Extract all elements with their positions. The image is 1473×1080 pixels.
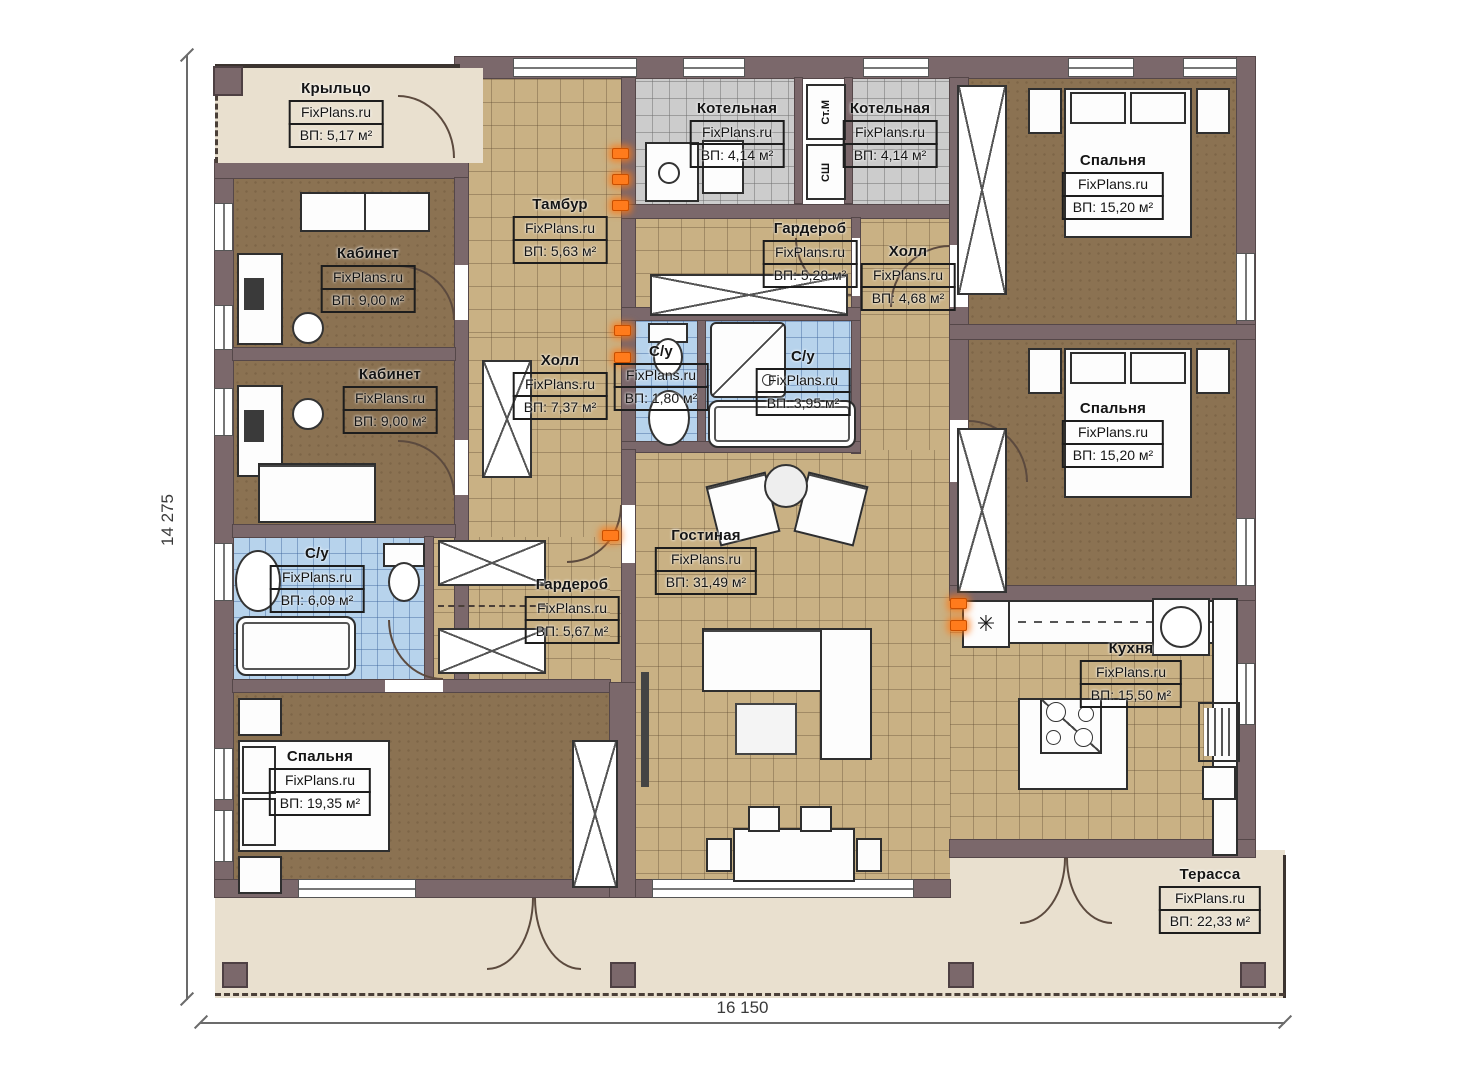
wardrobe-bedroom2 [957,428,1007,593]
window-top-5 [1183,58,1237,77]
watermark: FixPlans.ru [343,386,438,411]
room-area: ВП: 9,00 м² [343,409,438,434]
watermark: FixPlans.ru [269,768,371,793]
room-name: Холл [513,352,608,369]
wall-boilers-bottom [622,205,950,218]
watermark: FixPlans.ru [861,263,956,288]
room-label-living: Гостиная FixPlans.ru ВП: 31,49 м² [655,527,757,595]
washer-box: Ст.М [806,84,846,140]
room-label-hall1: Холл FixPlans.ru ВП: 4,68 м² [861,243,956,311]
room-name: Тамбур [513,196,608,213]
watermark: FixPlans.ru [1062,172,1164,197]
nightstand-bedroom3-top [238,698,282,736]
pillow-bedroom1-left [1070,92,1126,124]
pillow-bedroom1-right [1130,92,1186,124]
room-name: С/у [614,343,709,360]
room-area: ВП: 5,67 м² [525,619,620,644]
dimension-width-label: 16 150 [700,998,785,1018]
window-left-1 [214,203,233,251]
sofa-chaise [820,628,872,760]
window-bottom-1 [298,879,416,898]
dining-chair-3 [706,838,732,872]
radiator-marker [950,620,967,631]
terrace-right-edge [1283,855,1286,998]
wall-offices-right [455,178,468,683]
side-table [764,464,808,508]
pillow-bedroom2-right [1130,352,1186,384]
chair-office2 [292,398,324,430]
watermark: FixPlans.ru [763,240,858,265]
radiator-marker [614,325,631,336]
watermark: FixPlans.ru [690,120,785,145]
room-label-porch: Крыльцо FixPlans.ru ВП: 5,17 м² [289,80,384,148]
dining-table [733,828,855,882]
window-top-3 [863,58,929,77]
room-area: ВП: 15,20 м² [1062,443,1164,468]
room-label-wardrobe1: Гардероб FixPlans.ru ВП: 5,28 м² [763,220,858,288]
terrace-post-3 [948,962,974,988]
room-area: ВП: 5,17 м² [289,123,384,148]
nightstand-bedroom1-right [1196,88,1230,134]
room-label-office2: Кабинет FixPlans.ru ВП: 9,00 м² [343,366,438,434]
window-top-2 [683,58,745,77]
window-left-6 [214,810,233,862]
room-label-wc3: С/у FixPlans.ru ВП: 6,09 м² [270,545,365,613]
monitor-office2 [244,410,264,442]
room-area: ВП: 3,95 м² [756,391,851,416]
watermark: FixPlans.ru [513,372,608,397]
room-name: Спальня [269,748,371,765]
room-label-wc1: С/у FixPlans.ru ВП: 1,80 м² [614,343,709,411]
terrace-post-2 [610,962,636,988]
room-label-boiler2: Котельная FixPlans.ru ВП: 4,14 м² [843,100,938,168]
watermark: FixPlans.ru [289,100,384,125]
room-area: ВП: 7,37 м² [513,395,608,420]
room-name: Котельная [690,100,785,117]
watermark: FixPlans.ru [513,216,608,241]
toilet-bowl-wc3 [388,562,420,602]
dimension-line-bottom [200,1022,1285,1024]
vent-glyph-icon: ✳ [977,611,995,637]
burner-4 [1074,728,1093,747]
wall-bedrooms-divider [950,325,1255,339]
nightstand-bedroom2-right [1196,348,1230,394]
watermark: FixPlans.ru [321,265,416,290]
porch-column [213,66,243,96]
watermark: FixPlans.ru [525,596,620,621]
room-name: Котельная [843,100,938,117]
room-area: ВП: 4,14 м² [843,143,938,168]
radiator-marker [612,148,629,159]
room-area: ВП: 4,68 м² [861,286,956,311]
window-left-3 [214,388,233,436]
terrace-post-4 [1240,962,1266,988]
room-label-tambour: Тамбур FixPlans.ru ВП: 5,63 м² [513,196,608,264]
room-area: ВП: 15,50 м² [1080,683,1182,708]
room-area: ВП: 22,33 м² [1159,909,1261,934]
door-gap-living [622,505,635,563]
bathtub-wc3 [236,616,356,676]
monitor-office1 [244,278,264,310]
room-label-boiler1: Котельная FixPlans.ru ВП: 4,14 м² [690,100,785,168]
wall-living-left [622,450,635,683]
room-name: С/у [756,348,851,365]
room-label-terrace: Терасса FixPlans.ru ВП: 22,33 м² [1159,866,1261,934]
dining-chair-4 [856,838,882,872]
burner-1 [1046,702,1066,722]
room-area: ВП: 9,00 м² [321,288,416,313]
dryer-box: СШ [806,144,846,200]
terrace-edge-dashed [215,990,1285,996]
wall-kitchen-bottom [950,840,1255,857]
sofa-office2 [258,463,376,523]
chair-office1 [292,312,324,344]
watermark: FixPlans.ru [1080,660,1182,685]
room-name: Гардероб [763,220,858,237]
room-label-hall2: Холл FixPlans.ru ВП: 7,37 м² [513,352,608,420]
room-name: Кабинет [321,245,416,262]
watermark: FixPlans.ru [614,363,709,388]
dryer-label: СШ [820,163,832,182]
room-area: ВП: 4,14 м² [690,143,785,168]
radiator-marker [612,200,629,211]
pillow-bedroom2-left [1070,352,1126,384]
dimension-height-label: 14 275 [158,480,178,560]
room-name: Спальня [1062,152,1164,169]
fridge [1198,702,1240,762]
kitchen-vent: ✳ [962,600,1010,648]
window-top-4 [1068,58,1134,77]
wardrobe-bedroom1 [957,85,1007,295]
shelf-office1 [300,192,430,232]
window-left-5 [214,748,233,800]
room-area: ВП: 15,20 м² [1062,195,1164,220]
watermark: FixPlans.ru [655,547,757,572]
room-label-wardrobe2: Гардероб FixPlans.ru ВП: 5,67 м² [525,576,620,644]
room-name: С/у [270,545,365,562]
door-gap-office2 [455,440,468,495]
dining-chair-2 [800,806,832,832]
watermark: FixPlans.ru [843,120,938,145]
room-area: ВП: 31,49 м² [655,570,757,595]
floor-plan: Ст.М СШ ✳ [0,0,1473,1080]
room-name: Гардероб [525,576,620,593]
dimension-line-left [186,55,188,1000]
coffee-table [735,703,797,755]
terrace-post-1 [222,962,248,988]
window-right-1 [1236,253,1255,321]
watermark: FixPlans.ru [270,565,365,590]
watermark: FixPlans.ru [1062,420,1164,445]
room-area: ВП: 6,09 м² [270,588,365,613]
room-name: Кухня [1080,640,1182,657]
room-label-wc2: С/у FixPlans.ru ВП: 3,95 м² [756,348,851,416]
nightstand-bedroom2-left [1028,348,1062,394]
door-gap-office1 [455,265,468,320]
room-name: Гостиная [655,527,757,544]
watermark: FixPlans.ru [1159,886,1261,911]
burner-3 [1046,730,1061,745]
window-top-1 [513,58,637,77]
boiler-burner [658,162,680,184]
burner-2 [1078,706,1094,722]
wall-boiler1-closet [795,78,802,203]
room-area: ВП: 1,80 м² [614,386,709,411]
room-area: ВП: 5,63 м² [513,239,608,264]
watermark: FixPlans.ru [756,368,851,393]
room-label-bedroom3: Спальня FixPlans.ru ВП: 19,35 м² [269,748,371,816]
radiator-marker [950,598,967,609]
wall-office2-wc3 [233,525,455,537]
room-name: Спальня [1062,400,1164,417]
room-label-office1: Кабинет FixPlans.ru ВП: 9,00 м² [321,245,416,313]
room-name: Холл [861,243,956,260]
washer-label: Ст.М [820,100,832,125]
room-label-kitchen: Кухня FixPlans.ru ВП: 15,50 м² [1080,640,1182,708]
room-area: ВП: 5,28 м² [763,263,858,288]
room-label-bedroom1: Спальня FixPlans.ru ВП: 15,20 м² [1062,152,1164,220]
window-left-2 [214,305,233,350]
radiator-marker [602,530,619,541]
room-name: Крыльцо [289,80,384,97]
window-left-4 [214,543,233,601]
nightstand-bedroom1-left [1028,88,1062,134]
room-name: Терасса [1159,866,1261,883]
room-area: ВП: 19,35 м² [269,791,371,816]
tv-unit [641,672,649,787]
room-label-bedroom2: Спальня FixPlans.ru ВП: 15,20 м² [1062,400,1164,468]
dining-chair-1 [748,806,780,832]
wall-office-divider [233,348,455,360]
nightstand-bedroom3-bottom [238,856,282,894]
window-right-2 [1236,518,1255,586]
room-name: Кабинет [343,366,438,383]
kitchen-cabinet-small [1202,766,1236,800]
door-gap-bedroom3 [385,680,443,692]
radiator-marker [612,174,629,185]
living-wardrobe [572,740,618,888]
